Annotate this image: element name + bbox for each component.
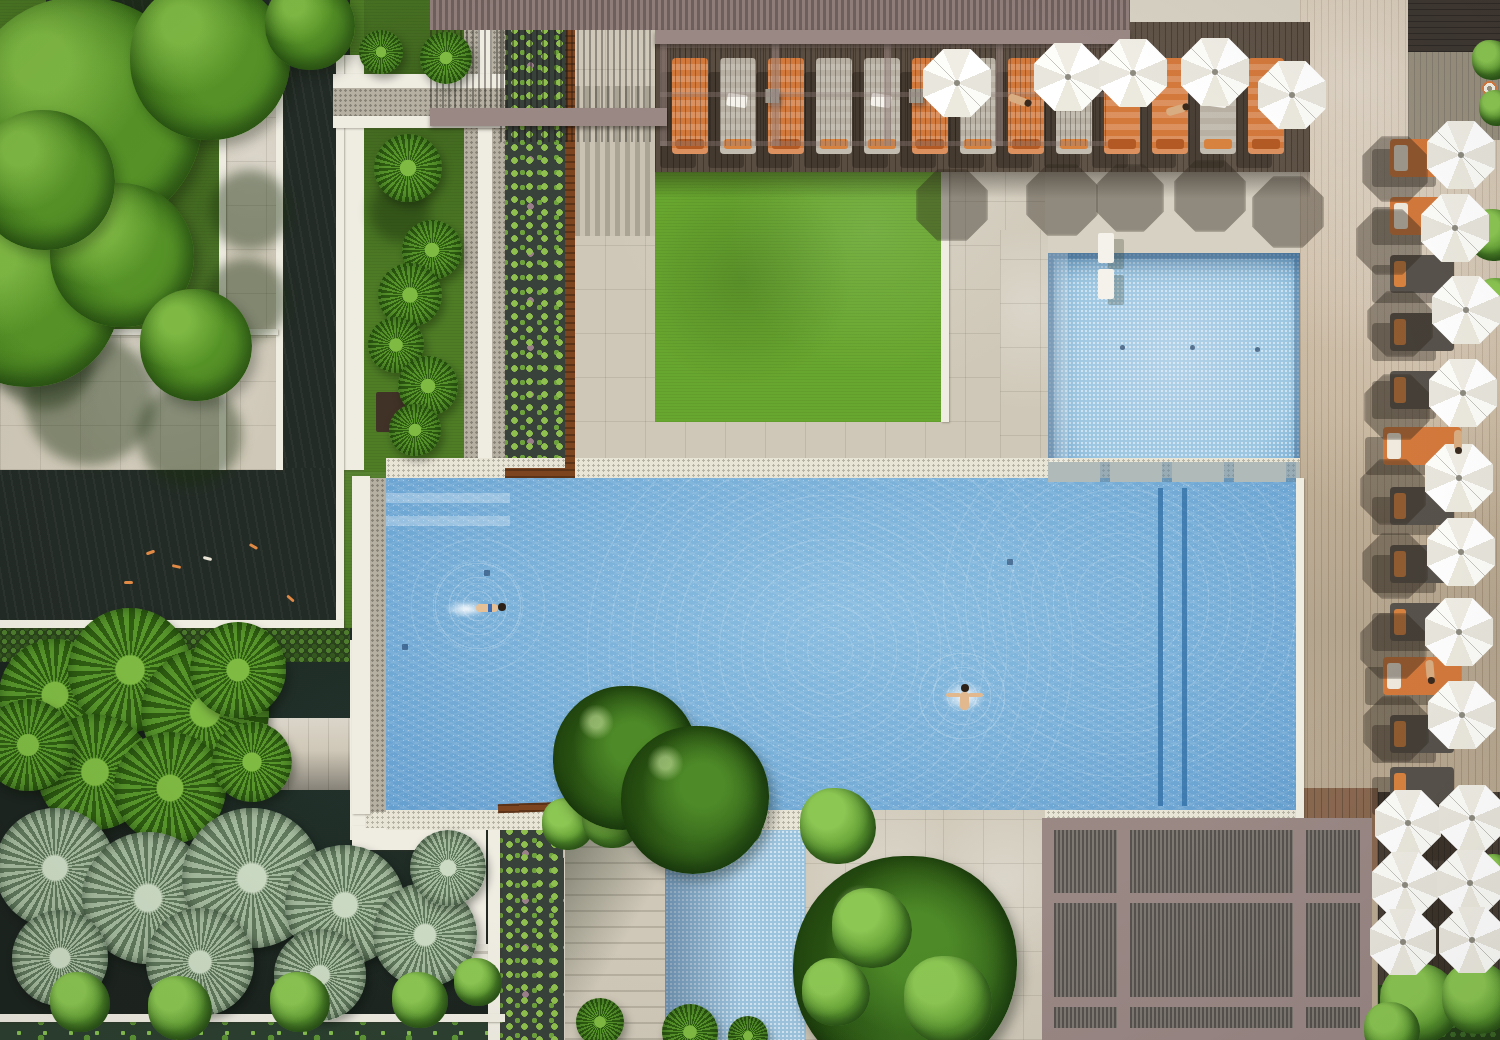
umbrella-shadow [1363,696,1429,762]
palm-tree [420,32,472,84]
shrub [454,958,502,1006]
tree-shadow [210,170,290,250]
shrub [800,788,876,864]
sun-lounger [672,58,708,154]
umbrella-shadow [1174,160,1246,232]
side-table [909,89,923,103]
kids-pool-bench-slabs [1048,462,1300,482]
pergola-beam [1042,997,1372,1007]
shrub [1472,40,1500,80]
palm-tree [359,30,403,74]
pool-entry-steps [386,480,510,526]
pool-edge [1296,478,1304,830]
koi-pond-horizontal [0,468,336,628]
lane-line [1182,488,1187,806]
umbrella [1375,790,1441,856]
umbrella-shadow [1360,613,1426,679]
person [1454,430,1462,450]
corten-edge [505,468,575,478]
pool-drain [402,644,408,650]
umbrella-shadow [1360,459,1426,525]
swimmer [934,676,990,716]
pond-edge [488,810,500,1040]
umbrella [923,49,991,117]
kids-pool-water [1048,253,1300,480]
shrub [802,958,870,1026]
palm-tree [374,134,442,202]
kids-pool-step [1048,253,1068,480]
pool-bench [1098,269,1114,299]
shrub [392,972,448,1028]
umbrella-shadow [1364,374,1430,440]
koi-fish [124,581,133,584]
pool-edge [352,476,370,814]
person-head [1455,447,1462,454]
umbrella [1372,852,1438,918]
umbrella-shadow [1362,533,1428,599]
shrub [832,888,912,968]
sun-lounger [720,58,756,154]
pool-gutter [370,478,386,812]
kids-pool-wall [1000,230,1048,480]
shrub [270,972,330,1032]
shrub [50,972,110,1032]
sun-lounger [816,58,852,154]
pool-bench [1098,233,1114,263]
umbrella-shadow [1356,209,1422,275]
lane-line [1158,488,1163,806]
aerial-pool-courtyard-photo [0,0,1500,1040]
pool-dot [1255,347,1260,352]
side-table [765,89,779,103]
towel [726,93,748,109]
towel [870,93,892,109]
tree-canopy [140,289,252,401]
pergola-roof [430,0,1130,30]
umbrella-shadow [1026,164,1098,236]
umbrella-shadow [1367,291,1433,357]
palm-tree [576,998,624,1040]
palm-tree [389,404,441,456]
sun-lounger [864,58,900,154]
pergola-beam [1042,893,1372,903]
fan-palm [410,830,486,906]
sun-lounger [768,58,804,154]
event-lawn-square [655,164,943,422]
person [1425,660,1435,681]
pool-dot [1120,345,1125,350]
shrub [148,976,212,1040]
pergola-beam [430,108,667,126]
swimmer [450,586,506,626]
umbrella-shadow [1362,136,1428,202]
pool-drain [1007,559,1013,565]
pergola-beam [655,30,1130,44]
pool-dot [1190,345,1195,350]
umbrella-shadow [1252,176,1324,248]
palm-tree [190,622,286,718]
palm-tree [212,722,292,802]
umbrella [1370,909,1436,975]
